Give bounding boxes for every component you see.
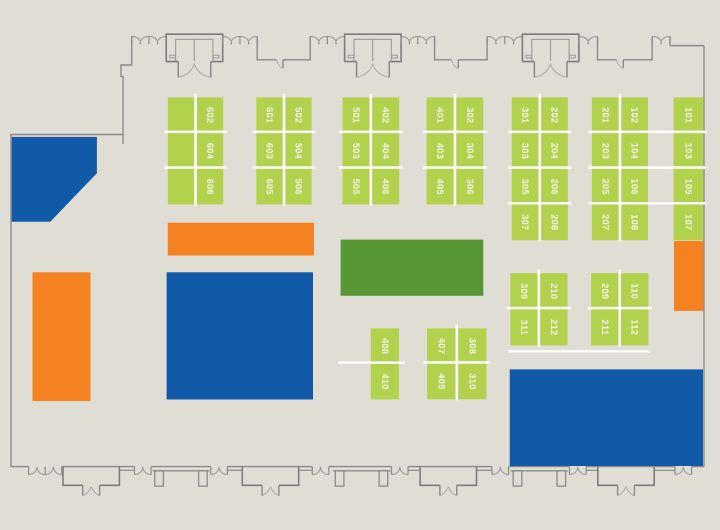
svg-text:209: 209 xyxy=(600,283,610,299)
svg-text:403: 403 xyxy=(435,143,445,159)
svg-text:301: 301 xyxy=(520,107,530,123)
svg-text:402: 402 xyxy=(381,107,391,123)
svg-text:104: 104 xyxy=(630,143,640,160)
svg-text:307: 307 xyxy=(520,214,530,230)
svg-text:112: 112 xyxy=(630,320,640,336)
svg-text:302: 302 xyxy=(465,107,475,123)
svg-text:208: 208 xyxy=(550,214,560,230)
svg-text:106: 106 xyxy=(630,179,640,195)
svg-text:401: 401 xyxy=(435,107,445,123)
svg-text:206: 206 xyxy=(550,179,560,195)
svg-text:102: 102 xyxy=(630,107,640,123)
svg-text:409: 409 xyxy=(436,373,446,389)
svg-text:212: 212 xyxy=(549,319,559,335)
svg-text:202: 202 xyxy=(550,107,560,123)
svg-text:201: 201 xyxy=(600,107,610,123)
svg-text:504: 504 xyxy=(294,143,304,160)
svg-text:502: 502 xyxy=(294,107,304,123)
svg-text:602: 602 xyxy=(205,107,215,123)
svg-text:404: 404 xyxy=(381,143,391,160)
svg-text:305: 305 xyxy=(520,179,530,195)
svg-text:606: 606 xyxy=(205,179,215,195)
svg-text:605: 605 xyxy=(265,179,275,195)
svg-text:505: 505 xyxy=(351,179,361,195)
svg-text:503: 503 xyxy=(351,143,361,159)
svg-text:211: 211 xyxy=(600,320,610,336)
svg-text:101: 101 xyxy=(683,107,693,123)
svg-text:203: 203 xyxy=(600,143,610,159)
svg-text:410: 410 xyxy=(380,373,390,389)
svg-text:311: 311 xyxy=(519,320,529,336)
svg-text:601: 601 xyxy=(265,107,275,123)
svg-text:304: 304 xyxy=(465,143,475,160)
svg-text:108: 108 xyxy=(630,214,640,230)
svg-text:303: 303 xyxy=(520,143,530,159)
svg-text:210: 210 xyxy=(549,283,559,299)
svg-text:603: 603 xyxy=(265,143,275,159)
svg-text:110: 110 xyxy=(630,283,640,299)
svg-text:501: 501 xyxy=(351,107,361,123)
svg-text:310: 310 xyxy=(467,373,477,389)
svg-text:309: 309 xyxy=(519,283,529,299)
svg-text:506: 506 xyxy=(294,179,304,195)
svg-text:103: 103 xyxy=(683,143,693,159)
svg-text:205: 205 xyxy=(600,179,610,195)
svg-text:406: 406 xyxy=(381,179,391,195)
svg-text:407: 407 xyxy=(436,338,446,354)
svg-text:405: 405 xyxy=(435,179,445,195)
svg-text:308: 308 xyxy=(467,338,477,354)
svg-text:207: 207 xyxy=(600,214,610,230)
svg-text:204: 204 xyxy=(550,143,560,160)
svg-text:107: 107 xyxy=(683,214,693,230)
svg-text:408: 408 xyxy=(380,338,390,354)
svg-text:306: 306 xyxy=(465,179,475,195)
svg-text:604: 604 xyxy=(205,143,215,160)
svg-text:105: 105 xyxy=(683,179,693,195)
